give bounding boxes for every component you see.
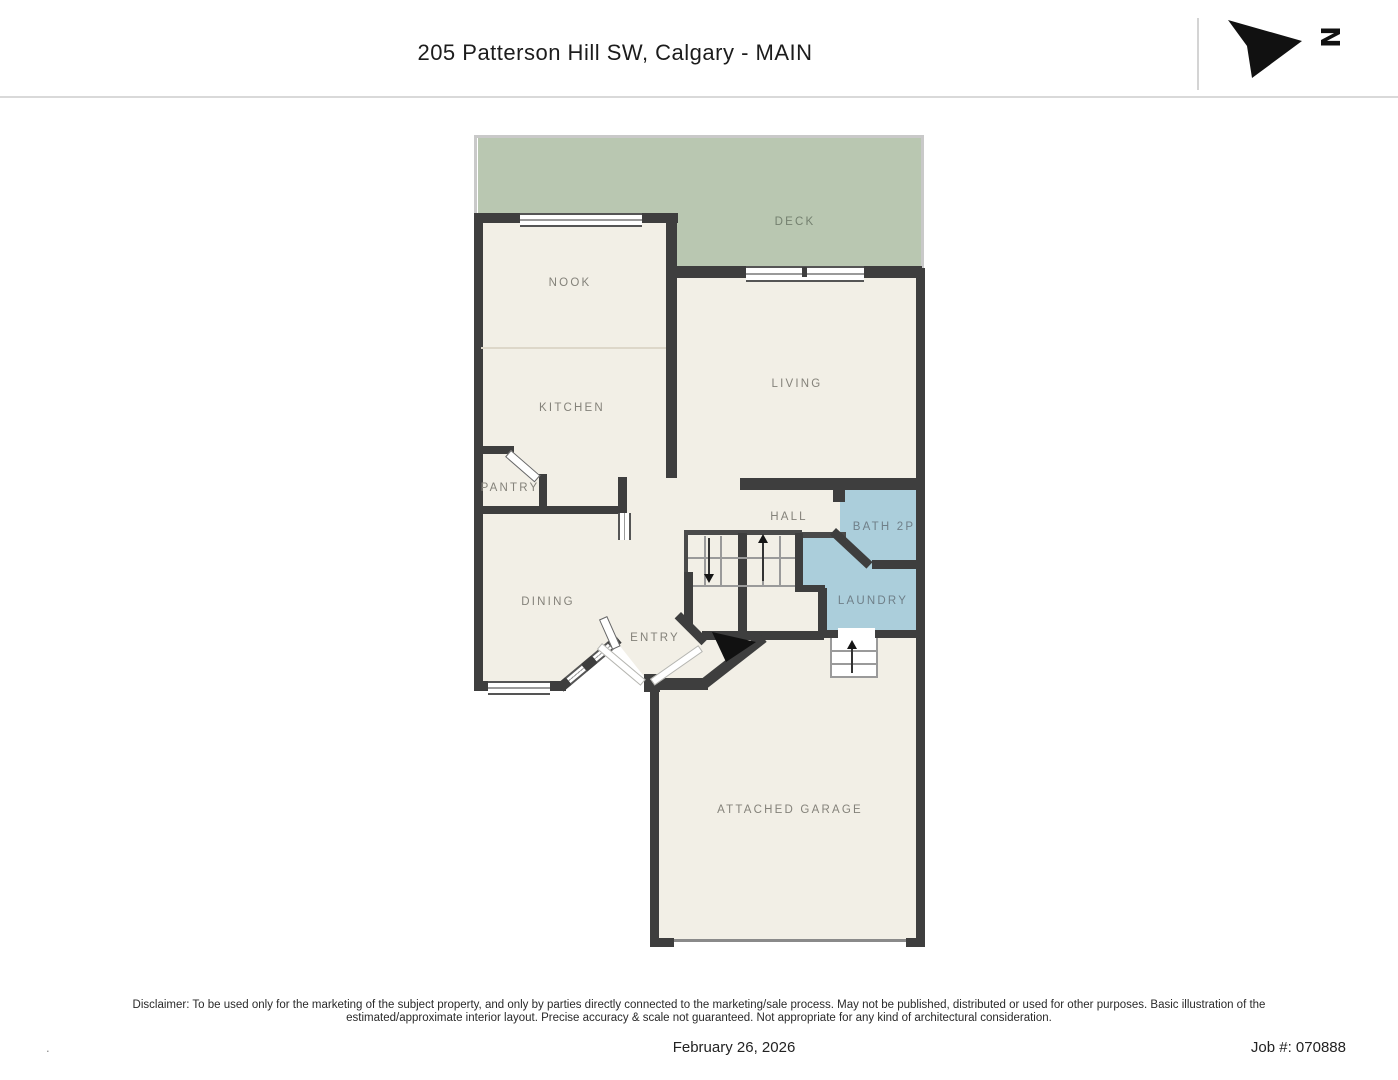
window <box>618 513 631 540</box>
wall <box>740 478 835 490</box>
room-label-bath: BATH 2P <box>853 521 915 533</box>
wall <box>474 213 522 223</box>
wall <box>684 533 688 577</box>
north-letter: N <box>1314 26 1344 48</box>
wall <box>916 268 925 947</box>
window-divider <box>802 267 807 277</box>
window <box>488 681 550 695</box>
header-divider <box>0 96 1398 98</box>
footer-date: February 26, 2026 <box>0 1039 1398 1056</box>
stair-tread <box>832 663 876 665</box>
stair-tread <box>832 650 876 652</box>
wall <box>666 266 746 278</box>
deck-edge-top <box>474 135 924 138</box>
disclaimer-line-2: estimated/approximate interior layout. P… <box>0 1012 1398 1024</box>
wall <box>833 478 845 502</box>
room-label-kitchen: KITCHEN <box>539 402 605 414</box>
room-label-entry: ENTRY <box>630 632 680 644</box>
garage-door-line <box>674 939 906 942</box>
floor-plan-page: 205 Patterson Hill SW, Calgary - MAIN N <box>0 0 1398 1080</box>
stair-tread <box>720 536 722 585</box>
wall <box>539 474 547 513</box>
stair-rail <box>830 638 832 678</box>
wall <box>650 688 659 947</box>
wall <box>795 533 803 592</box>
wall <box>650 938 674 947</box>
disclaimer-line-1: Disclaimer: To be used only for the mark… <box>0 999 1398 1011</box>
stair-up-arrow <box>847 640 857 649</box>
page-title: 205 Patterson Hill SW, Calgary - MAIN <box>0 40 1230 66</box>
laundry-door-opening <box>838 628 875 638</box>
stair-tread <box>688 557 795 559</box>
room-label-living: LIVING <box>772 378 823 390</box>
stair-tread <box>832 676 876 678</box>
wall <box>738 533 747 631</box>
room-label-laundry: LAUNDRY <box>838 595 908 607</box>
footer-job-number: Job #: 070888 <box>1251 1039 1346 1056</box>
north-arrow-icon: N <box>1222 14 1332 90</box>
wall <box>474 506 627 514</box>
wall <box>862 266 922 278</box>
room-label-nook: NOOK <box>549 277 592 289</box>
window <box>520 213 642 227</box>
wall <box>845 478 925 490</box>
room-label-pantry: PANTRY <box>481 482 540 494</box>
stair-rail <box>876 638 878 678</box>
stair-landing-line <box>693 585 795 587</box>
stair-up-arrow <box>758 534 768 543</box>
compass-divider <box>1197 18 1199 90</box>
stair-tread <box>779 536 781 585</box>
room-label-deck: DECK <box>775 216 816 228</box>
stair-arrow-stem <box>762 543 764 581</box>
room-label-hall: HALL <box>770 511 808 523</box>
stair-arrow-stem <box>708 538 710 574</box>
nook-kitchen-divider <box>481 347 666 349</box>
wall <box>618 477 627 514</box>
room-label-garage: ATTACHED GARAGE <box>717 804 863 816</box>
room-label-dining: DINING <box>521 596 574 608</box>
wall <box>474 681 488 691</box>
deck-edge-right <box>921 138 924 268</box>
stair-down-arrow <box>704 574 714 583</box>
north-arrow-glyph <box>1222 14 1322 86</box>
wall <box>872 560 925 569</box>
wall <box>666 216 677 478</box>
wall <box>875 630 925 638</box>
stair-arrow-stem <box>851 649 853 673</box>
deck-edge-left <box>474 138 477 216</box>
wall <box>906 938 925 947</box>
